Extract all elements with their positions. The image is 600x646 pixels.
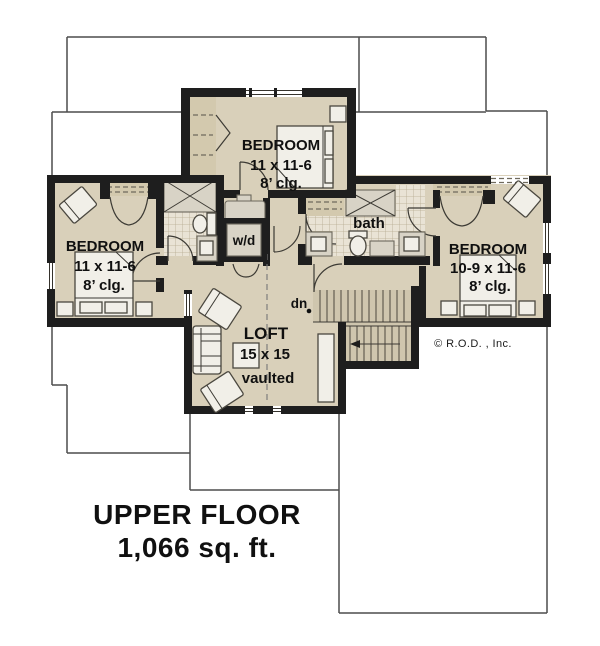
vanity-left-bath [197,236,217,261]
floor-plan-canvas: BEDROOM 11 x 11-6 8’ clg. BEDROOM 11 x 1… [0,0,600,646]
vanity-main-bath-west [306,232,332,256]
window-bedroom-top [246,88,302,97]
label-bath: bath [353,215,385,232]
toilet-left-bath [193,213,216,235]
nightstand-right-bedroom-east [519,301,535,315]
label-loft-name: LOFT [244,324,289,343]
floor-title: UPPER FLOOR [93,499,301,530]
linen-closet-bath [306,196,344,216]
floor-area: 1,066 sq. ft. [117,532,276,563]
toilet-main-bath [349,231,367,256]
window-bedroom-left [47,260,55,292]
window-loft-west [184,294,192,316]
window-bedroom-right-lower [543,264,551,294]
label-bedroom-right-dims: 10-9 x 11-6 [450,260,526,277]
closet-bedroom-right [433,183,491,196]
nightstand-top-bedroom [330,106,346,122]
label-bedroom-right-name: BEDROOM [449,241,527,258]
vanity-main-bath-east [399,232,425,256]
label-bedroom-left-name: BEDROOM [66,238,144,255]
floor-plan-page: BEDROOM 11 x 11-6 8’ clg. BEDROOM 11 x 1… [0,0,600,646]
label-bedroom-top-ceiling: 8’ clg. [260,175,302,192]
window-bedroom-right-upper [543,223,551,253]
counter-main-bath [370,241,394,256]
label-bedroom-right-ceiling: 8’ clg. [469,278,511,295]
nightstand-left-bedroom-west [57,302,73,316]
title-block: UPPER FLOOR 1,066 sq. ft. [93,499,301,563]
closet-bedroom-top [190,97,216,175]
nightstand-right-bedroom-west [441,301,457,315]
label-bedroom-left-ceiling: 8’ clg. [83,277,125,294]
label-bedroom-top-dims: 11 x 11-6 [250,157,312,174]
nightstand-left-bedroom-east [136,302,152,316]
label-stairs-down: dn [291,296,308,311]
label-bedroom-left-dims: 11 x 11-6 [74,258,136,275]
tile-main-bath-east [396,185,425,219]
copyright-note: © R.O.D. , Inc. [434,338,512,350]
label-bedroom-top-name: BEDROOM [242,137,320,154]
window-bedroom-right-top-dashed [491,176,529,184]
label-loft-dims: 15 x 15 [240,346,290,363]
label-loft-ceiling: vaulted [242,370,295,387]
bench-loft [318,334,334,402]
stair-start-dot [307,309,312,314]
label-washer-dryer: w/d [232,233,256,248]
sofa-loft [193,326,221,374]
shower-left-bath [164,180,216,212]
